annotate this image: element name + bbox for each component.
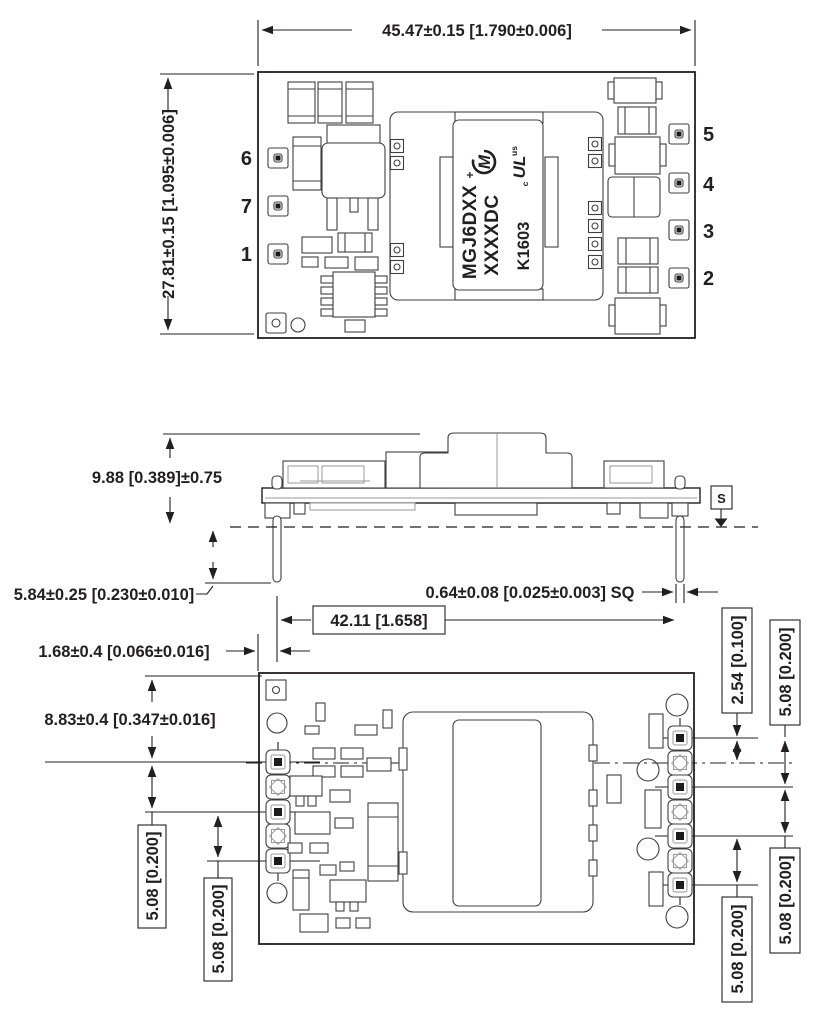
side-view: S 9.88 [0.389]±0.75 5.84±0.25 [0.230±0.0…: [14, 433, 758, 671]
pin-label-3: 3: [703, 221, 714, 243]
bottom-view: 8.83±0.4 [0.347±0.016] 5.08 [0.200] 5.08…: [44, 608, 800, 1002]
pin-label-5: 5: [703, 124, 714, 146]
top-view-right-components: [608, 78, 666, 334]
bottom-top-offset-dim-text: 8.83±0.4 [0.347±0.016]: [44, 711, 215, 729]
top-view-right-pads: [669, 124, 689, 288]
right-pitch-dimension-middle: 5.08 [0.200]: [770, 790, 800, 953]
module-part-number-line1: MGJ6DXX: [460, 185, 481, 279]
technical-drawing-canvas: 45.47±0.15 [1.790±0.006] 27.81±0.15 [1.0…: [0, 0, 815, 1024]
right-pitch-dim-text-top: 5.08 [0.200]: [777, 628, 795, 717]
right-pitch-dim-text-middle: 5.08 [0.200]: [777, 856, 795, 945]
side-view-left-pin: [273, 516, 281, 582]
ul-mark-letters: UL: [510, 156, 529, 179]
top-view: 45.47±0.15 [1.790±0.006] 27.81±0.15 [1.0…: [160, 20, 715, 338]
side-view-right-pin: [676, 516, 684, 582]
side-view-board-body: [262, 488, 700, 503]
left-pitch-dimension-2: 5.08 [0.200]: [204, 816, 232, 981]
bottom-top-offset-dimension: 8.83±0.4 [0.347±0.016]: [44, 676, 262, 758]
left-pitch-dim-text-2: 5.08 [0.200]: [210, 885, 228, 974]
pin-label-1: 1: [241, 244, 252, 266]
top-width-dim-text: 45.47±0.15 [1.790±0.006]: [382, 22, 572, 40]
right-pitch-dim-text-bottom: 5.08 [0.200]: [729, 905, 747, 994]
pin-size-dim-text: 0.64±0.08 [0.025±0.003] SQ: [426, 584, 635, 602]
pin-label-4: 4: [703, 174, 715, 196]
module-part-number-line2: XXXXDC: [482, 194, 503, 275]
left-pitch-dimension-1: 5.08 [0.200]: [138, 766, 166, 928]
murata-logo-plus: +: [463, 171, 477, 178]
package-dimension-drawing: 45.47±0.15 [1.790±0.006] 27.81±0.15 [1.0…: [0, 0, 815, 1024]
right-pitch-dimension-top: 5.08 [0.200]: [770, 620, 800, 784]
left-pitch-dim-text-1: 5.08 [0.200]: [144, 832, 162, 921]
pin-span-dimension: 42.11 [1.658]: [277, 596, 674, 662]
murata-logo-letter: M: [475, 154, 494, 169]
top-view-transformer: M + UL c us MGJ6DXX XXXXDC K1603: [390, 112, 603, 300]
pin-label-2: 2: [703, 268, 714, 290]
pin-span-dim-text: 42.11 [1.658]: [330, 612, 427, 630]
top-width-dimension: 45.47±0.15 [1.790±0.006]: [258, 20, 695, 66]
right-small-pitch-dim-text: 2.54 [0.100]: [729, 616, 747, 705]
pin-length-dimension: 5.84±0.25 [0.230±0.010]: [14, 531, 271, 604]
side-view-transformer-hump: [420, 433, 572, 488]
ul-mark-c: c: [520, 181, 530, 186]
seating-plane-symbol-text: S: [717, 491, 726, 506]
bottom-view-transformer: [399, 712, 597, 912]
top-height-dim-text: 27.81±0.15 [1.095±0.006]: [160, 109, 178, 299]
right-small-pitch-dimension: 2.54 [0.100]: [722, 608, 752, 760]
seating-plane-datum: S: [711, 486, 732, 527]
edge-offset-dimension: 1.68±0.4 [0.066±0.016]: [38, 634, 310, 671]
edge-offset-dim-text: 1.68±0.4 [0.066±0.016]: [38, 643, 209, 661]
pin-size-dimension: 0.64±0.08 [0.025±0.003] SQ: [426, 584, 718, 603]
bottom-view-left-pads: [266, 742, 290, 881]
pin-label-6: 6: [241, 148, 252, 170]
side-height-dim-text: 9.88 [0.389]±0.75: [92, 469, 222, 487]
bottom-view-right-pads: [668, 718, 692, 905]
side-view-components: [283, 433, 664, 488]
side-view-standoffs: [265, 503, 688, 518]
module-date-code: K1603: [515, 222, 533, 271]
pin-length-dim-text: 5.84±0.25 [0.230±0.010]: [14, 586, 195, 604]
pin-label-7: 7: [241, 196, 252, 218]
ul-mark-us: us: [509, 146, 519, 156]
right-pitch-dimension-bottom: 5.08 [0.200]: [722, 839, 752, 1002]
